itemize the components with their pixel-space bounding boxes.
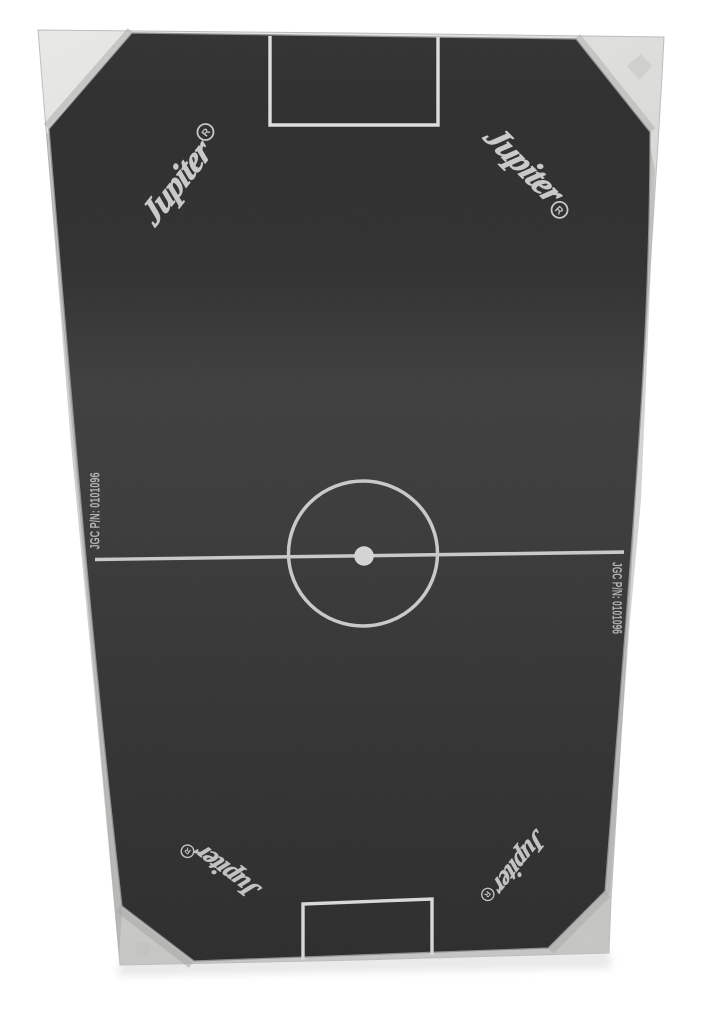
svg-text:JGC P/N: 0101096: JGC P/N: 0101096 <box>87 472 103 549</box>
svg-text:JGC P/N: 0101096: JGC P/N: 0101096 <box>610 562 626 634</box>
